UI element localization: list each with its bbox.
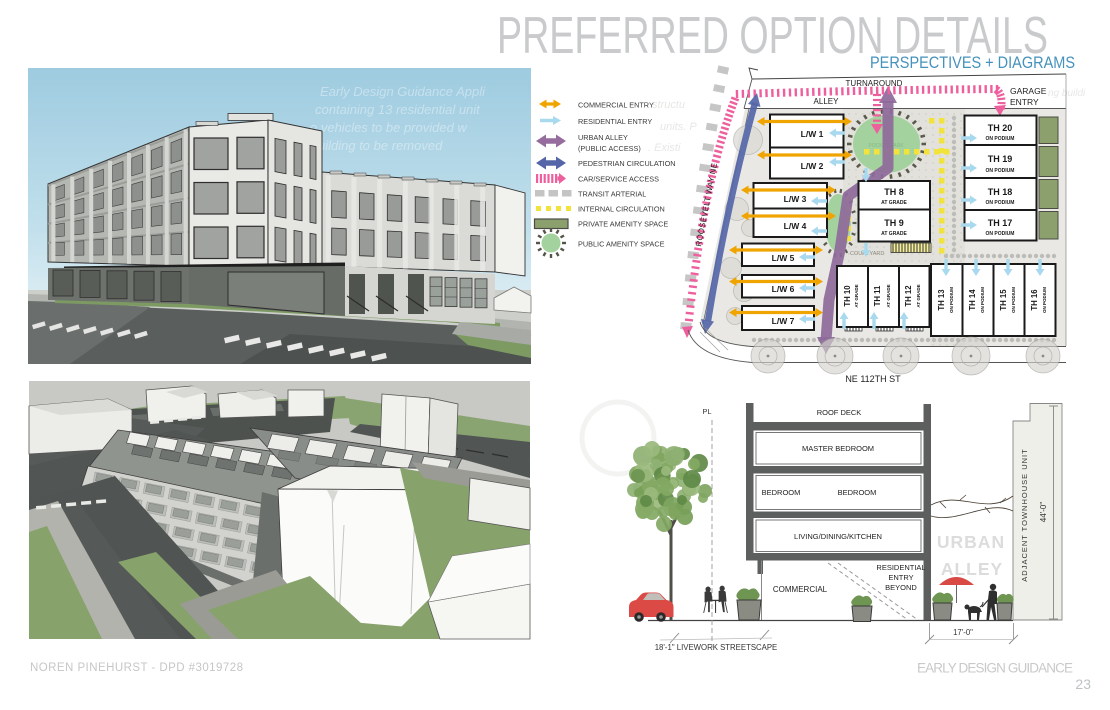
svg-text:ON PODIUM: ON PODIUM: [986, 136, 1015, 142]
svg-text:RESIDENTIAL: RESIDENTIAL: [876, 563, 925, 572]
svg-text:LIVING/DINING/KITCHEN: LIVING/DINING/KITCHEN: [794, 532, 882, 541]
svg-text:L/W 1: L/W 1: [801, 129, 824, 139]
svg-text:Early Design Guidance Appli: Early Design Guidance Appli: [320, 84, 486, 99]
svg-text:MASTER BEDROOM: MASTER BEDROOM: [802, 444, 874, 453]
svg-text:TH 8: TH 8: [884, 187, 904, 197]
svg-text:PERSPECTIVES + DIAGRAMS: PERSPECTIVES + DIAGRAMS: [870, 54, 1075, 72]
svg-text:TH 17: TH 17: [988, 218, 1013, 228]
svg-text:ON PODIUM: ON PODIUM: [986, 231, 1015, 237]
svg-text:units. P: units. P: [660, 121, 697, 133]
svg-text:PEDESTRIAN CIRCULATION: PEDESTRIAN CIRCULATION: [578, 159, 676, 168]
svg-text:TH 16: TH 16: [1030, 289, 1039, 311]
svg-text:L/W 4: L/W 4: [784, 221, 807, 231]
svg-text:L/W 3: L/W 3: [784, 194, 807, 204]
svg-text:L/W 6: L/W 6: [772, 284, 795, 294]
svg-text:44'-0": 44'-0": [1039, 502, 1048, 523]
svg-text:PL: PL: [702, 407, 711, 416]
svg-text:INTERNAL CIRCULATION: INTERNAL CIRCULATION: [578, 205, 665, 214]
svg-text:L/W 5: L/W 5: [772, 253, 795, 263]
svg-text:ON PODIUM: ON PODIUM: [986, 200, 1015, 206]
svg-text:TH 19: TH 19: [988, 154, 1013, 164]
svg-text:AT GRADE: AT GRADE: [881, 200, 907, 206]
svg-text:TURNAROUND: TURNAROUND: [846, 79, 903, 88]
svg-text:L/W 2: L/W 2: [801, 161, 824, 171]
svg-text:URBAN: URBAN: [937, 532, 1005, 552]
svg-text:ON PODIUM: ON PODIUM: [1011, 287, 1016, 313]
svg-text:AT GRADE: AT GRADE: [886, 284, 891, 307]
svg-text:TRANSIT ARTERIAL: TRANSIT ARTERIAL: [578, 190, 646, 199]
svg-text:NOREN PINEHURST - DPD #3019728: NOREN PINEHURST - DPD #3019728: [30, 662, 243, 674]
svg-text:17'-0": 17'-0": [953, 628, 973, 637]
svg-text:containing 13 residential unit: containing 13 residential unit: [315, 102, 481, 117]
svg-text:TH 14: TH 14: [968, 289, 977, 311]
svg-text:ON PODIUM: ON PODIUM: [980, 287, 985, 313]
svg-text:TH 11: TH 11: [873, 285, 882, 306]
svg-text:ROOF DECK: ROOF DECK: [817, 408, 862, 417]
svg-text:TH 20: TH 20: [988, 123, 1013, 133]
svg-text:BEDROOM: BEDROOM: [838, 488, 877, 497]
svg-text:PRIVATE AMENITY SPACE: PRIVATE AMENITY SPACE: [578, 220, 668, 229]
svg-text:18'-1" LIVEWORK STREETSCAPE: 18'-1" LIVEWORK STREETSCAPE: [655, 643, 778, 652]
svg-text:NE 112TH ST: NE 112TH ST: [845, 374, 901, 384]
svg-text:. Existi: . Existi: [648, 142, 681, 154]
svg-text:URBAN ALLEY: URBAN ALLEY: [578, 133, 628, 142]
svg-text:AT GRADE: AT GRADE: [854, 284, 859, 307]
svg-text:COMMERCIAL: COMMERCIAL: [773, 585, 828, 594]
svg-text:ADJACENT TOWNHOUSE UNIT: ADJACENT TOWNHOUSE UNIT: [1020, 448, 1029, 581]
svg-text:CAR/SERVICE ACCESS: CAR/SERVICE ACCESS: [578, 175, 659, 184]
svg-text:(PUBLIC ACCESS): (PUBLIC ACCESS): [578, 144, 641, 153]
svg-text:L/W 7: L/W 7: [772, 316, 795, 326]
svg-text:structu: structu: [652, 99, 685, 111]
svg-text:uilding to be removed: uilding to be removed: [318, 138, 443, 153]
svg-text:AT GRADE: AT GRADE: [881, 231, 907, 237]
svg-text:TH 9: TH 9: [884, 218, 904, 228]
svg-text:TH 12: TH 12: [904, 285, 913, 307]
svg-text:COMMERCIAL ENTRY: COMMERCIAL ENTRY: [578, 101, 654, 110]
svg-text:ALLEY: ALLEY: [941, 559, 1003, 579]
svg-text:BEYOND: BEYOND: [885, 583, 917, 592]
svg-text:AT GRADE: AT GRADE: [916, 284, 921, 307]
svg-text:23: 23: [1075, 676, 1091, 692]
svg-text:EARLY DESIGN GUIDANCE: EARLY DESIGN GUIDANCE: [917, 661, 1073, 676]
svg-text:RESIDENTIAL ENTRY: RESIDENTIAL ENTRY: [578, 117, 652, 126]
svg-text:ENTRY: ENTRY: [888, 573, 913, 582]
svg-text:ON PODIUM: ON PODIUM: [986, 168, 1015, 174]
svg-text:ng buildi: ng buildi: [1048, 88, 1086, 99]
svg-text:PUBLIC AMENITY SPACE: PUBLIC AMENITY SPACE: [578, 240, 665, 249]
svg-text:ON PODIUM: ON PODIUM: [1042, 287, 1047, 313]
svg-text:ALLEY: ALLEY: [814, 97, 840, 106]
svg-text:ENTRY: ENTRY: [1010, 97, 1039, 107]
svg-text:TH 18: TH 18: [988, 187, 1013, 197]
svg-text:BEDROOM: BEDROOM: [762, 488, 801, 497]
svg-text:TH 13: TH 13: [937, 289, 946, 311]
svg-text:GARAGE: GARAGE: [1010, 86, 1047, 96]
svg-text:TH 10: TH 10: [843, 285, 852, 307]
svg-text:ON PODIUM: ON PODIUM: [949, 287, 954, 313]
svg-text:TH 15: TH 15: [999, 289, 1008, 311]
svg-text:o vehicles to be provided w: o vehicles to be provided w: [310, 120, 468, 135]
